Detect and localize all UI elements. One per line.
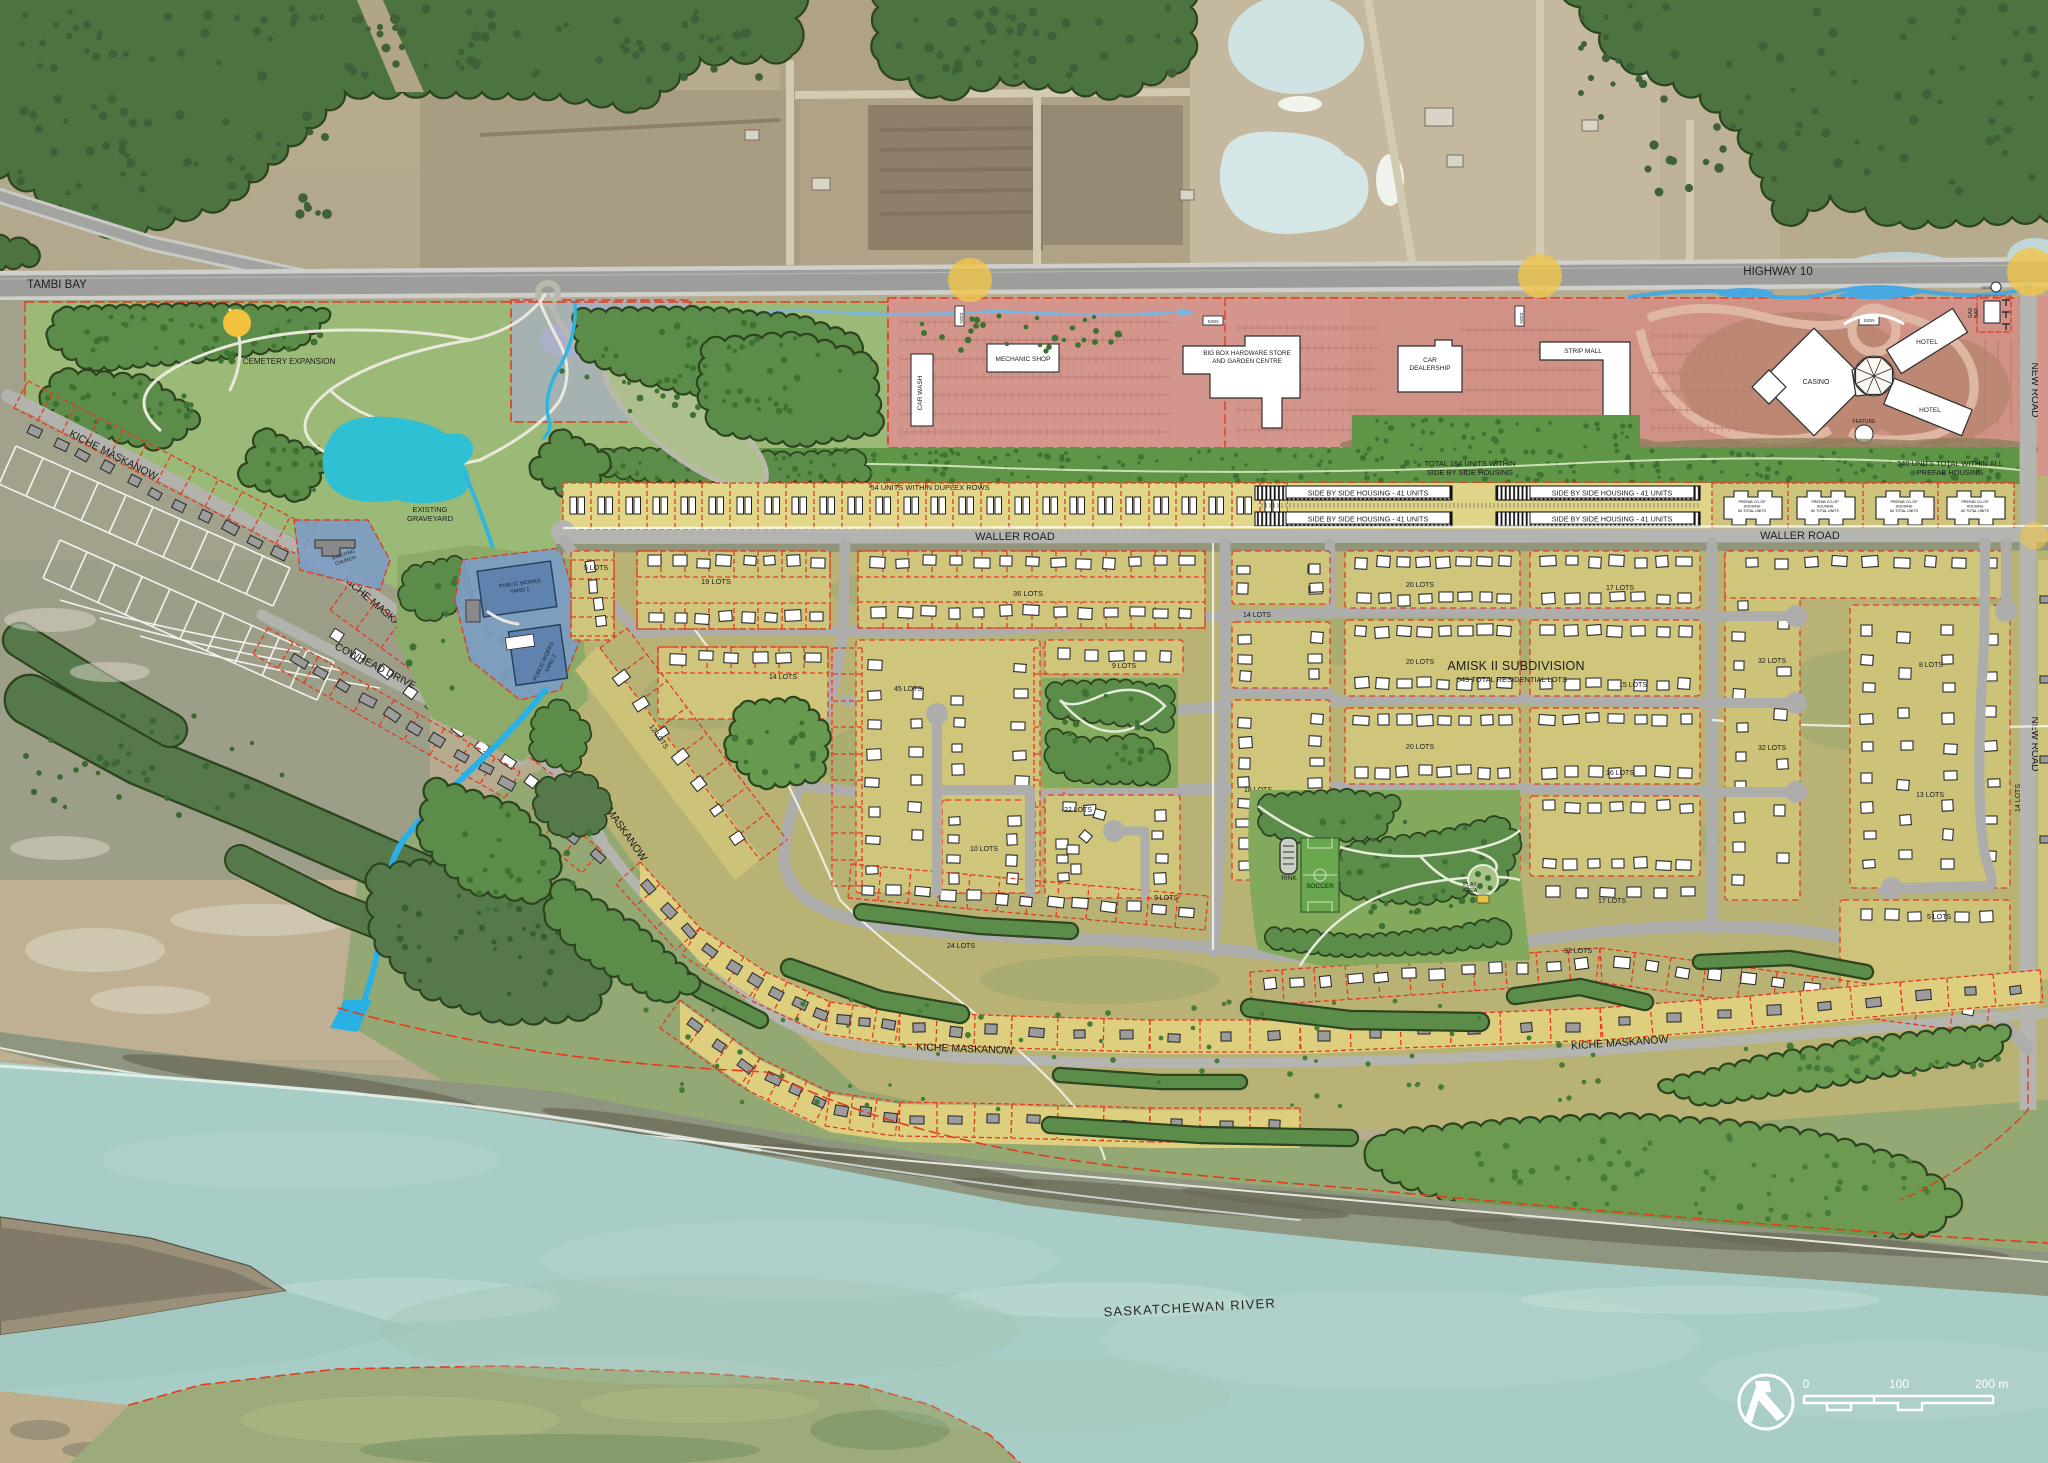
svg-text:14 LOTS: 14 LOTS — [769, 674, 797, 681]
svg-text:TOTAL 164 UNITS WITHIN: TOTAL 164 UNITS WITHIN — [1424, 459, 1515, 468]
svg-text:HOUSING: HOUSING — [1817, 505, 1834, 509]
svg-text:SIGN: SIGN — [1863, 318, 1874, 323]
svg-text:16 LOTS: 16 LOTS — [1606, 770, 1634, 777]
svg-text:SIDE BY SIDE HOUSING - 41 UNIT: SIDE BY SIDE HOUSING - 41 UNITS — [1308, 515, 1429, 524]
svg-text:GRAVEYARD: GRAVEYARD — [407, 514, 454, 523]
svg-text:5 LOTS: 5 LOTS — [584, 565, 608, 572]
svg-text:HOTEL: HOTEL — [1919, 407, 1941, 414]
svg-text:19 LOTS: 19 LOTS — [701, 577, 731, 586]
svg-text:45 LOTS: 45 LOTS — [894, 686, 922, 693]
svg-text:54 UNITS WITHIN DUPLEX ROWS: 54 UNITS WITHIN DUPLEX ROWS — [870, 483, 989, 492]
svg-text:549 TOTAL RESIDENTIAL LOTS: 549 TOTAL RESIDENTIAL LOTS — [1457, 675, 1567, 684]
svg-text:20 LOTS: 20 LOTS — [1406, 582, 1434, 589]
svg-text:PREFAB CO-OP: PREFAB CO-OP — [1812, 500, 1840, 504]
svg-text:SIDE BY SIDE HOUSING - 41 UNIT: SIDE BY SIDE HOUSING - 41 UNITS — [1308, 489, 1429, 498]
svg-text:HOUSING: HOUSING — [1896, 505, 1913, 509]
svg-text:HOTEL: HOTEL — [1916, 339, 1938, 346]
svg-text:100: 100 — [1889, 1377, 1909, 1391]
svg-text:14 LOTS: 14 LOTS — [2015, 784, 2022, 812]
svg-text:200 m: 200 m — [1975, 1377, 2008, 1391]
svg-text:9 LOTS: 9 LOTS — [1112, 663, 1136, 670]
svg-text:WALLER ROAD: WALLER ROAD — [1760, 530, 1840, 542]
svg-text:SIDE BY SIDE HOUSING: SIDE BY SIDE HOUSING — [1427, 468, 1513, 477]
svg-text:240 UNITS TOTAL WITHIN ALL: 240 UNITS TOTAL WITHIN ALL — [1897, 459, 2003, 468]
svg-text:SIGN: SIGN — [1981, 285, 1991, 290]
svg-text:SIGN: SIGN — [959, 312, 964, 323]
svg-text:HOUSING: HOUSING — [1744, 505, 1761, 509]
svg-text:RINK: RINK — [1281, 875, 1297, 882]
svg-text:60 TOTAL UNITS: 60 TOTAL UNITS — [1890, 509, 1918, 513]
svg-text:8 LOTS: 8 LOTS — [1919, 662, 1943, 669]
svg-text:CAR: CAR — [1423, 357, 1437, 364]
svg-text:EXISTING: EXISTING — [412, 505, 447, 514]
svg-text:32 LOTS: 32 LOTS — [1758, 658, 1786, 665]
svg-text:MECHANIC SHOP: MECHANIC SHOP — [996, 356, 1051, 363]
svg-text:SIGN: SIGN — [1207, 319, 1218, 324]
svg-text:TAMBI BAY: TAMBI BAY — [27, 279, 87, 291]
svg-text:PREFAB CO-OP: PREFAB CO-OP — [1891, 500, 1919, 504]
svg-text:PREFAB HOUSING: PREFAB HOUSING — [1917, 468, 1984, 477]
svg-text:SIDE BY SIDE HOUSING - 41 UNIT: SIDE BY SIDE HOUSING - 41 UNITS — [1552, 489, 1673, 498]
svg-text:17 LOTS: 17 LOTS — [1598, 898, 1626, 905]
svg-text:WALLER ROAD: WALLER ROAD — [975, 531, 1055, 543]
svg-text:32 LOTS: 32 LOTS — [1564, 948, 1592, 955]
svg-text:0: 0 — [1803, 1377, 1810, 1391]
svg-text:13 LOTS: 13 LOTS — [1916, 792, 1944, 799]
svg-text:CASINO: CASINO — [1803, 379, 1830, 386]
svg-text:20 LOTS: 20 LOTS — [1406, 744, 1434, 751]
svg-text:FEATURE: FEATURE — [1853, 419, 1877, 425]
svg-text:60 TOTAL UNITS: 60 TOTAL UNITS — [1961, 509, 1989, 513]
svg-text:20 LOTS: 20 LOTS — [1406, 659, 1434, 666]
svg-text:DEALERSHIP: DEALERSHIP — [1409, 365, 1450, 372]
svg-text:9 LOTS: 9 LOTS — [1154, 895, 1178, 902]
svg-text:SIGN: SIGN — [1519, 312, 1524, 323]
svg-text:AND GARDEN CENTRE: AND GARDEN CENTRE — [1212, 358, 1282, 365]
svg-text:17 LOTS: 17 LOTS — [1606, 585, 1634, 592]
svg-text:AMISK II SUBDIVISION: AMISK II SUBDIVISION — [1447, 659, 1584, 673]
svg-text:60 TOTAL UNITS: 60 TOTAL UNITS — [1811, 509, 1839, 513]
svg-text:PREFAB CO-OP: PREFAB CO-OP — [1962, 500, 1990, 504]
svg-text:22 LOTS: 22 LOTS — [1064, 807, 1092, 814]
svg-text:15 LOTS: 15 LOTS — [1619, 682, 1647, 689]
svg-text:24 LOTS: 24 LOTS — [947, 943, 975, 950]
svg-text:SIDE BY SIDE HOUSING - 41 UNIT: SIDE BY SIDE HOUSING - 41 UNITS — [1552, 515, 1673, 524]
svg-text:60 TOTAL UNITS: 60 TOTAL UNITS — [1738, 509, 1766, 513]
svg-text:32 LOTS: 32 LOTS — [1758, 745, 1786, 752]
svg-text:CEMETERY EXPANSION: CEMETERY EXPANSION — [243, 357, 336, 366]
svg-text:5 LOTS: 5 LOTS — [1927, 914, 1951, 921]
svg-text:HIGHWAY 10: HIGHWAY 10 — [1743, 266, 1812, 278]
svg-text:PREFAB CO-OP: PREFAB CO-OP — [1739, 500, 1767, 504]
svg-text:SOCCER: SOCCER — [1306, 883, 1334, 890]
svg-text:STRIP MALL: STRIP MALL — [1564, 348, 1602, 355]
svg-text:HOUSING: HOUSING — [1967, 505, 1984, 509]
svg-text:CAR WASH: CAR WASH — [917, 375, 924, 410]
svg-text:14 LOTS: 14 LOTS — [1243, 612, 1271, 619]
svg-text:BIG BOX HARDWARE STORE: BIG BOX HARDWARE STORE — [1203, 350, 1290, 357]
svg-text:AREA: AREA — [1463, 888, 1478, 894]
svg-text:36 LOTS: 36 LOTS — [1013, 589, 1043, 598]
svg-text:BAR: BAR — [1974, 307, 1980, 318]
svg-text:10 LOTS: 10 LOTS — [970, 846, 998, 853]
